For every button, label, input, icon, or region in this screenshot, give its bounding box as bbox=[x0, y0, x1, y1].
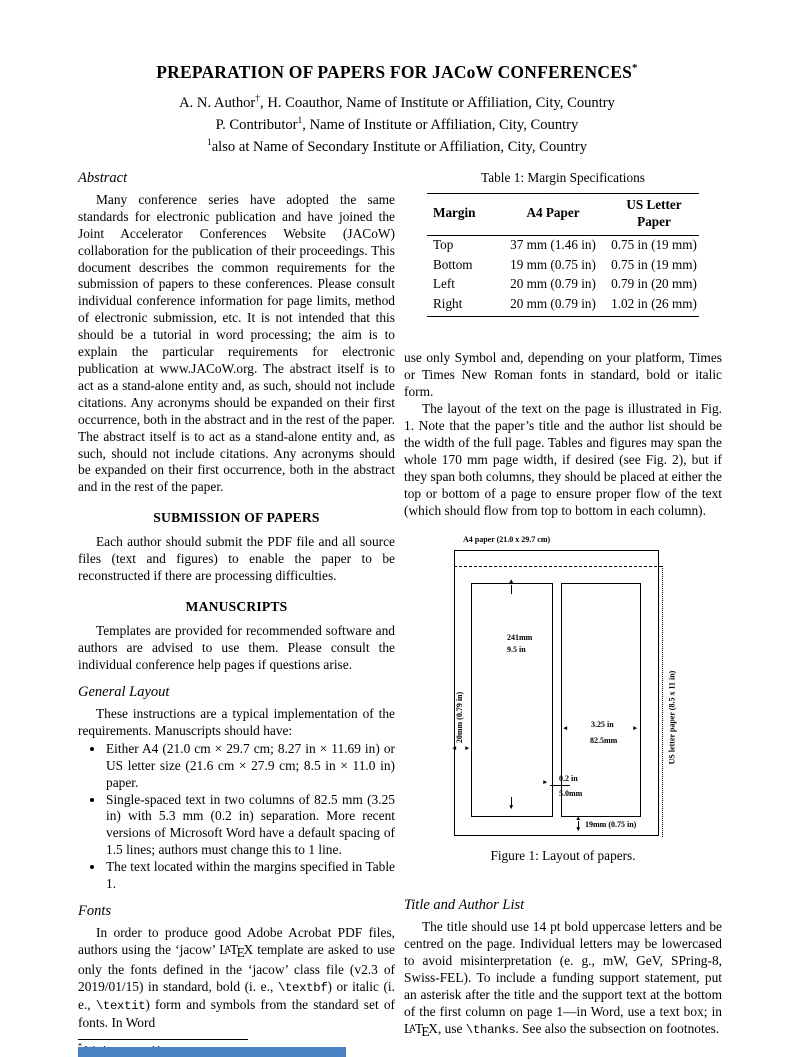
us-letter-right-edge bbox=[662, 566, 663, 837]
title-block: PREPARATION OF PAPERS FOR JACoW CONFEREN… bbox=[0, 62, 794, 158]
figure-caption: Figure 1: Layout of papers. bbox=[404, 848, 722, 865]
footnote-separator bbox=[78, 1039, 248, 1040]
gap-mm-label: 5.0mm bbox=[559, 789, 582, 798]
author-list: A. N. Author†, H. Coauthor, Name of Inst… bbox=[0, 92, 794, 158]
bullet-item: Single-spaced text in two columns of 82.… bbox=[105, 792, 395, 859]
column-width-in-label: 3.25 in bbox=[591, 720, 614, 729]
title-footnote-marker: * bbox=[632, 62, 638, 74]
arrow-left-icon: ◄ bbox=[562, 726, 568, 733]
submission-heading: SUBMISSION OF PAPERS bbox=[78, 510, 395, 527]
us-letter-label: US letter paper (8.5 x 11 in) bbox=[668, 668, 677, 768]
general-layout-heading: General Layout bbox=[78, 684, 395, 701]
general-layout-intro: These instructions are a typical impleme… bbox=[78, 706, 395, 740]
latex-logo: LATEX bbox=[404, 1021, 438, 1036]
bottom-margin-label: 19mm (0.75 in) bbox=[585, 820, 636, 829]
textit-command: \textit bbox=[96, 999, 146, 1013]
us-letter-top-edge bbox=[454, 566, 662, 567]
left-column: Abstract Many conference series have ado… bbox=[78, 170, 395, 1057]
textbf-command: \textbf bbox=[278, 981, 328, 995]
a4-paper-label: A4 paper (21.0 x 29.7 cm) bbox=[463, 535, 550, 544]
title-author-list-heading: Title and Author List bbox=[404, 897, 722, 914]
column-header: US Letter Paper bbox=[609, 193, 699, 235]
left-margin-label: 20mm (0.79 in) bbox=[455, 692, 464, 743]
column-height-mm-label: 241mm bbox=[507, 633, 532, 642]
general-layout-bullet-list: Either A4 (21.0 cm × 29.7 cm; 8.27 in × … bbox=[78, 741, 395, 892]
table-header-row: Margin A4 Paper US Letter Paper bbox=[427, 193, 699, 235]
table-row: Left 20 mm (0.79 in) 0.79 in (20 mm) bbox=[427, 275, 699, 295]
fonts-continuation-paragraph: use only Symbol and, depending on your p… bbox=[404, 350, 722, 401]
margin-specifications-table: Margin A4 Paper US Letter Paper Top 37 m… bbox=[427, 193, 699, 318]
bullet-item: The text located within the margins spec… bbox=[105, 859, 395, 893]
table-row: Top 37 mm (1.46 in) 0.75 in (19 mm) bbox=[427, 235, 699, 255]
column-header: Margin bbox=[427, 193, 497, 235]
dimension-line bbox=[550, 785, 570, 786]
manuscripts-heading: MANUSCRIPTS bbox=[78, 599, 395, 616]
submission-paragraph: Each author should submit the PDF file a… bbox=[78, 534, 395, 585]
bullet-item: Either A4 (21.0 cm × 29.7 cm; 8.27 in × … bbox=[105, 741, 395, 791]
arrow-right-icon: ► bbox=[464, 746, 470, 753]
abstract-paragraph: Many conference series have adopted the … bbox=[78, 192, 395, 496]
thanks-command: \thanks bbox=[466, 1023, 516, 1037]
column-width-mm-label: 82.5mm bbox=[590, 736, 617, 745]
document-page: PREPARATION OF PAPERS FOR JACoW CONFEREN… bbox=[0, 0, 794, 1057]
arrow-down-icon: ▼ bbox=[508, 805, 514, 812]
left-text-column-box bbox=[471, 583, 553, 817]
abstract-heading: Abstract bbox=[78, 170, 395, 187]
author-line-2: P. Contributor1, Name of Institute or Af… bbox=[0, 114, 794, 136]
column-height-in-label: 9.5 in bbox=[507, 645, 526, 654]
figure-1: A4 paper (21.0 x 29.7 cm) ▲ 241mm 9.5 in… bbox=[404, 535, 722, 845]
table-caption: Table 1: Margin Specifications bbox=[404, 170, 722, 187]
page-title-text: PREPARATION OF PAPERS FOR JACoW CONFEREN… bbox=[156, 62, 632, 82]
author-line-3: 1also at Name of Secondary Institute or … bbox=[0, 136, 794, 158]
fonts-heading: Fonts bbox=[78, 903, 395, 920]
table-row: Bottom 19 mm (0.75 in) 0.75 in (19 mm) bbox=[427, 255, 699, 275]
arrow-right-icon: ► bbox=[632, 726, 638, 733]
dimension-stem bbox=[511, 585, 512, 594]
author-line-1: A. N. Author†, H. Coauthor, Name of Inst… bbox=[0, 92, 794, 114]
fonts-paragraph: In order to produce good Adobe Acrobat P… bbox=[78, 925, 395, 1031]
bottom-progress-bar bbox=[78, 1047, 346, 1057]
title-author-list-paragraph: The title should use 14 pt bold uppercas… bbox=[404, 919, 722, 1040]
arrow-left-icon: ◄ bbox=[451, 746, 457, 753]
column-header: A4 Paper bbox=[497, 193, 609, 235]
gap-in-label: 0.2 in bbox=[559, 774, 578, 783]
arrow-down-icon: ▼ bbox=[575, 827, 581, 834]
table-row: Right 20 mm (0.79 in) 1.02 in (26 mm) bbox=[427, 294, 699, 317]
manuscripts-paragraph: Templates are provided for recommended s… bbox=[78, 623, 395, 674]
layout-paragraph: The layout of the text on the page is il… bbox=[404, 401, 722, 519]
latex-logo: LATEX bbox=[219, 942, 253, 957]
right-column: Table 1: Margin Specifications Margin A4… bbox=[404, 170, 722, 1041]
page-title: PREPARATION OF PAPERS FOR JACoW CONFEREN… bbox=[0, 62, 794, 83]
arrow-right-icon: ► bbox=[542, 780, 548, 787]
